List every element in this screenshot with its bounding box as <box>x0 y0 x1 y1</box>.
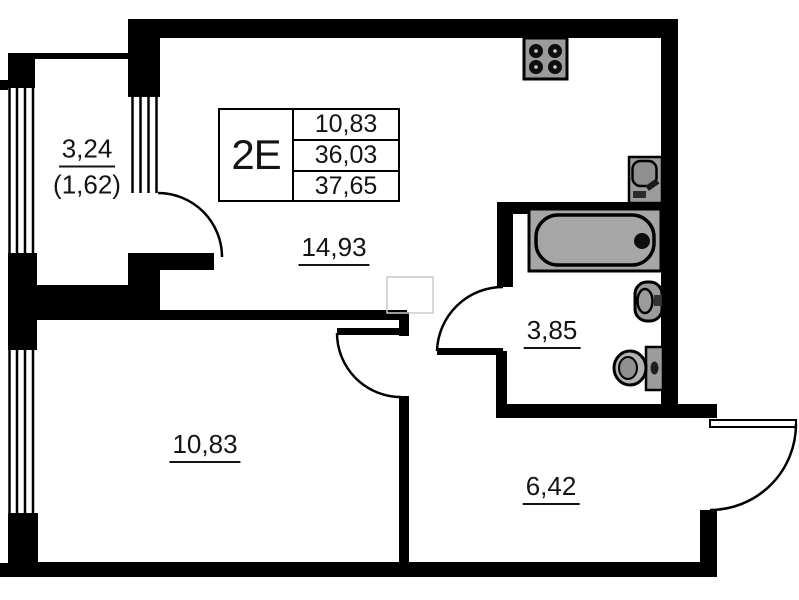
floor-plan-drawing <box>0 0 799 600</box>
apartment-info-box: 2E 10,83 36,03 37,65 <box>218 108 400 202</box>
bathroom-door-arc <box>437 287 503 351</box>
apartment-areas: 10,83 36,03 37,65 <box>294 110 398 200</box>
stove-icon <box>524 38 567 79</box>
washbasin-icon <box>635 282 662 321</box>
balcony-inner-window <box>133 97 157 193</box>
entrance-door-arc <box>710 424 796 510</box>
floor-plan: 2E 10,83 36,03 37,65 3,24 (1,62) 14,93 3… <box>0 0 799 600</box>
entrance-door-leaf <box>710 420 796 427</box>
balcony-reduced-area-label: (1,62) <box>53 170 121 201</box>
bedroom-door-leaf <box>337 328 401 335</box>
apartment-type-label: 2E <box>220 110 294 200</box>
kitchen-sink-icon <box>629 157 662 203</box>
kitchen-living-area-label: 14,93 <box>298 232 369 266</box>
bathtub-icon <box>529 209 661 271</box>
vent-shaft-outline <box>387 277 433 313</box>
bedroom-window <box>10 350 34 513</box>
bathroom-area-label: 3,85 <box>524 315 581 349</box>
total-area-value: 37,65 <box>294 172 398 201</box>
living-area-value: 10,83 <box>294 110 398 141</box>
bedroom-door-arc <box>337 333 401 397</box>
bedroom-area-label: 10,83 <box>169 429 240 463</box>
walls <box>0 19 717 577</box>
balcony-door-arc <box>158 193 222 257</box>
balcony-left-window <box>10 88 34 253</box>
balcony-area-label: 3,24 (1,62) <box>53 134 121 201</box>
doors <box>158 193 796 510</box>
hallway-area-label: 6,42 <box>523 471 580 505</box>
toilet-icon <box>614 347 663 390</box>
bathroom-door-leaf <box>437 348 503 355</box>
apartment-area-value: 36,03 <box>294 141 398 172</box>
